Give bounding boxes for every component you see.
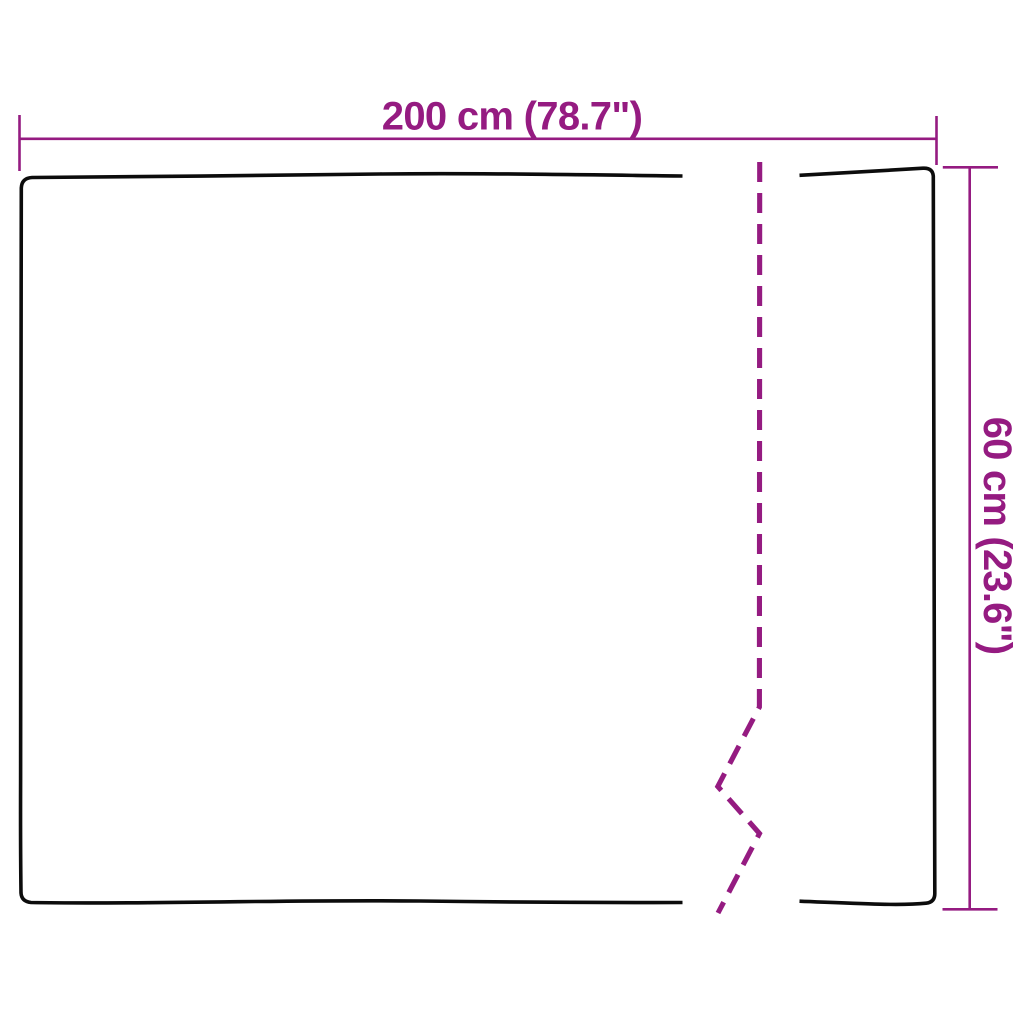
svg-text:60 cm (23.6"): 60 cm (23.6")	[975, 417, 1019, 655]
svg-text:200 cm (78.7"): 200 cm (78.7")	[382, 95, 642, 139]
